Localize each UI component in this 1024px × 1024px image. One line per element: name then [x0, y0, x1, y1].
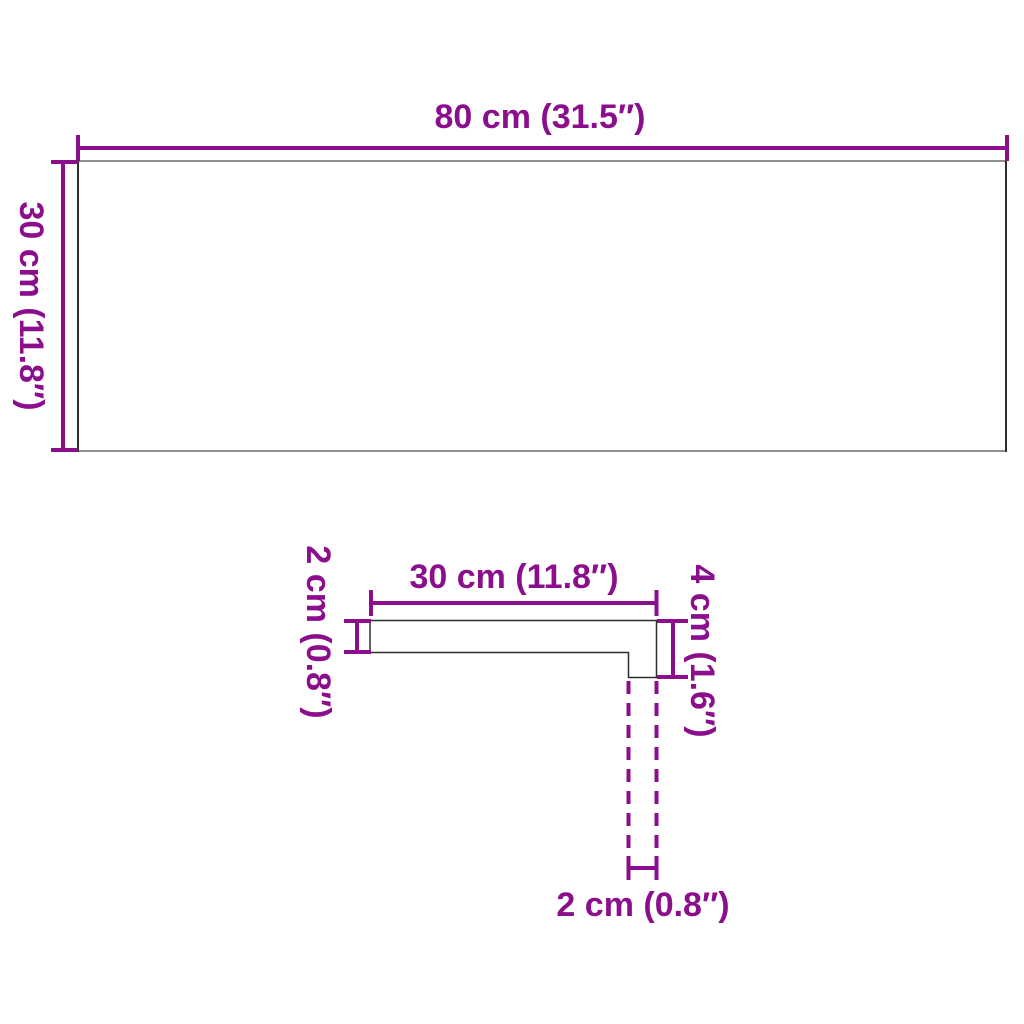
- profile-height-label: 4 cm (1.6″): [685, 564, 719, 737]
- top-view-outline: [77, 160, 1007, 452]
- profile-width-label: 30 cm (11.8″): [409, 560, 618, 594]
- top-view-height-label: 30 cm (11.8″): [14, 201, 48, 410]
- diagram-drawing: [0, 0, 1024, 1024]
- profile-nose-width-label: 2 cm (0.8″): [556, 888, 729, 922]
- dimension-diagram: 80 cm (31.5″) 30 cm (11.8″) 30 cm (11.8″…: [0, 0, 1024, 1024]
- top-view-dimension-lines: [51, 135, 1007, 451]
- profile-thickness-label: 2 cm (0.8″): [301, 545, 335, 718]
- tread-profile-outline: [370, 621, 657, 678]
- top-view-width-label: 80 cm (31.5″): [435, 100, 646, 134]
